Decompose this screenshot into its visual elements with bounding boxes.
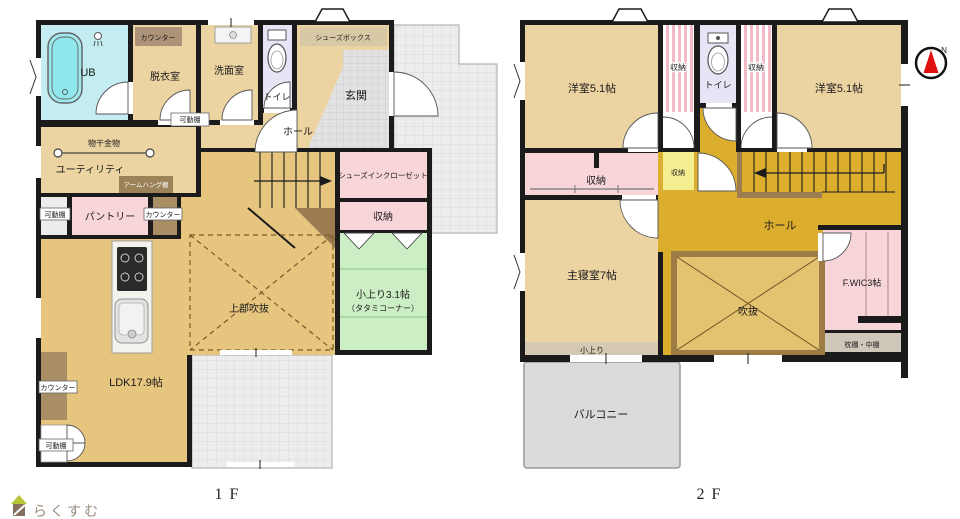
washbasin-icon xyxy=(215,27,251,43)
label-dressing: 脱衣室 xyxy=(150,70,180,83)
label-toilet-2f: トイレ xyxy=(704,80,731,90)
roof-vent xyxy=(822,9,858,22)
label-tatami-1: 小上り3.1帖 xyxy=(356,288,410,301)
label-closet-mid: 収納 xyxy=(586,174,606,187)
label-shoes-closet: シューズインクローゼット xyxy=(338,170,428,180)
label-fwic: F.WIC3帖 xyxy=(843,277,882,288)
label-balcony: バルコニー xyxy=(574,408,629,421)
logo-house-icon xyxy=(11,495,27,504)
toilet-icon-2f xyxy=(708,33,728,74)
compass-icon: N xyxy=(916,46,947,78)
label-toilet-1f: トイレ xyxy=(263,92,290,102)
bathtub-icon xyxy=(48,33,82,103)
sink-icon xyxy=(115,299,148,343)
label-hall-2f: ホール xyxy=(764,219,797,232)
label-washroom: 洗面室 xyxy=(214,64,244,77)
room-void-2f xyxy=(671,251,825,355)
label-closet-tl: 収納 xyxy=(670,62,686,72)
compass-north-label: N xyxy=(941,46,947,55)
roof-vent xyxy=(315,9,350,22)
label-pillow-shelf: 枕棚・中棚 xyxy=(845,340,880,349)
floor2-label: 2F xyxy=(697,486,728,503)
label-arm-hang: アームハング棚 xyxy=(124,180,169,189)
roof-vent xyxy=(612,9,648,22)
label-entrance: 玄関 xyxy=(345,88,367,102)
toilet-icon-1f xyxy=(268,30,286,72)
floorplan-page: カウンター UB 脱衣室 洗面室 トイレ シューズボックス 玄関 可動棚 ホール… xyxy=(0,0,960,519)
label-counter-wall: カウンター xyxy=(41,383,76,392)
label-hall-1f: ホール xyxy=(283,126,313,138)
label-void-2f: 吹抜 xyxy=(738,305,758,318)
label-ldk: LDK17.9帖 xyxy=(109,376,163,389)
label-tatami-2: （タタミコーナー） xyxy=(347,304,419,313)
label-shelf-pantry: 可動棚 xyxy=(45,210,66,219)
label-utility: ユーティリティ xyxy=(56,165,125,176)
label-closet-tr: 収納 xyxy=(748,62,764,72)
kitchen-island xyxy=(112,241,152,353)
label-west-left: 洋室5.1帖 xyxy=(568,81,616,95)
floor1-label: 1F xyxy=(215,486,246,503)
label-west-right: 洋室5.1帖 xyxy=(815,81,863,95)
label-shelf-top: 可動棚 xyxy=(180,115,201,124)
label-pantry: パントリー xyxy=(85,211,136,223)
logo: らくすむ xyxy=(11,495,101,519)
stove-icon xyxy=(117,247,147,291)
label-void-1f: 上部吹抜 xyxy=(229,302,269,315)
label-closet-yellow: 収納 xyxy=(671,168,685,177)
logo-text: らくすむ xyxy=(33,503,101,519)
label-storage-1f: 収納 xyxy=(373,210,393,223)
terrace xyxy=(192,355,332,468)
label-step-2f: 小上り xyxy=(580,346,604,355)
label-shelf-bottom: 可動棚 xyxy=(46,441,67,450)
label-master: 主寝室7帖 xyxy=(567,268,617,282)
label-ub: UB xyxy=(80,67,95,79)
stairs-rail-2f xyxy=(740,192,822,198)
label-counter-pantry: カウンター xyxy=(146,210,181,219)
label-shoe-box: シューズボックス xyxy=(315,33,370,42)
label-counter-bath: カウンター xyxy=(141,33,176,42)
label-laundry-hanger: 物干金物 xyxy=(88,138,120,148)
floorplan-canvas: カウンター UB 脱衣室 洗面室 トイレ シューズボックス 玄関 可動棚 ホール… xyxy=(0,0,960,519)
closet-mid-2f xyxy=(525,153,658,195)
